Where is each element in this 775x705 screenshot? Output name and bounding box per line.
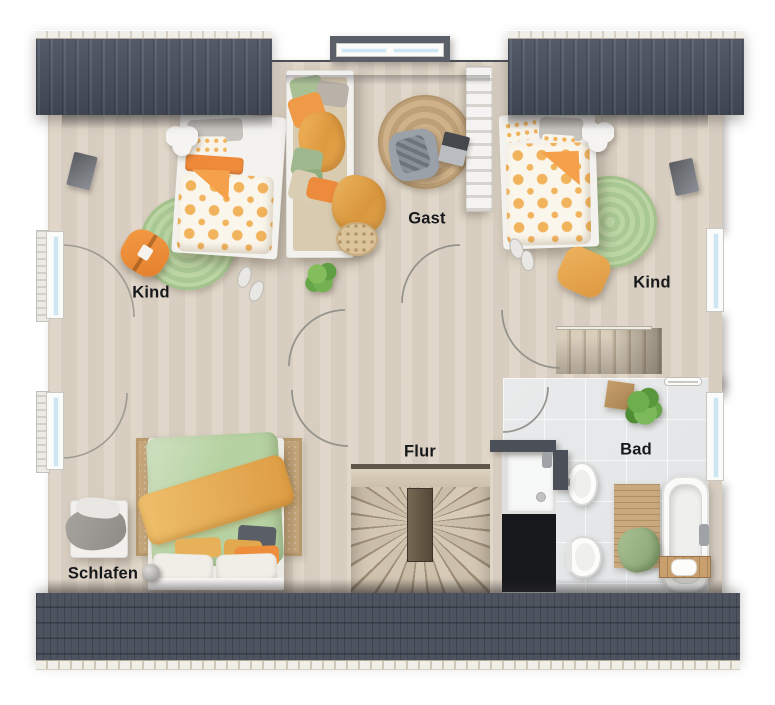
room-label-flur: Flur <box>404 443 436 462</box>
towel-rail <box>664 377 702 386</box>
room-label-schlafen: Schlafen <box>68 565 138 584</box>
room-label-bad: Bad <box>620 441 652 460</box>
dormer-window-gast <box>336 43 444 57</box>
door-arc-bad <box>503 387 548 432</box>
door-arc-gast <box>402 245 460 303</box>
roof-left-gutter <box>36 30 272 39</box>
room-label-kind-right: Kind <box>633 274 670 293</box>
floor-plan-canvas: Kind Gast Kind Schlafen Flur Bad <box>0 0 775 705</box>
roof-right <box>508 30 744 115</box>
room-label-gast: Gast <box>408 210 445 229</box>
roof-right-gutter <box>508 30 744 39</box>
door-arc-kind-left <box>289 310 345 366</box>
window-schlafen <box>46 392 64 470</box>
window-bad <box>706 392 724 481</box>
roof-bottom <box>36 593 740 670</box>
room-label-kind-left: Kind <box>132 284 169 303</box>
door-arc-kind-right <box>502 310 560 368</box>
window-kind-left <box>46 231 64 319</box>
roof-bottom-gutter <box>36 660 740 670</box>
window-arc-schlafen <box>62 393 127 458</box>
roof-left <box>36 30 272 115</box>
door-arc-schlafen <box>292 390 348 446</box>
window-kind-right <box>706 228 724 312</box>
window-arc-kind-left <box>62 245 134 317</box>
